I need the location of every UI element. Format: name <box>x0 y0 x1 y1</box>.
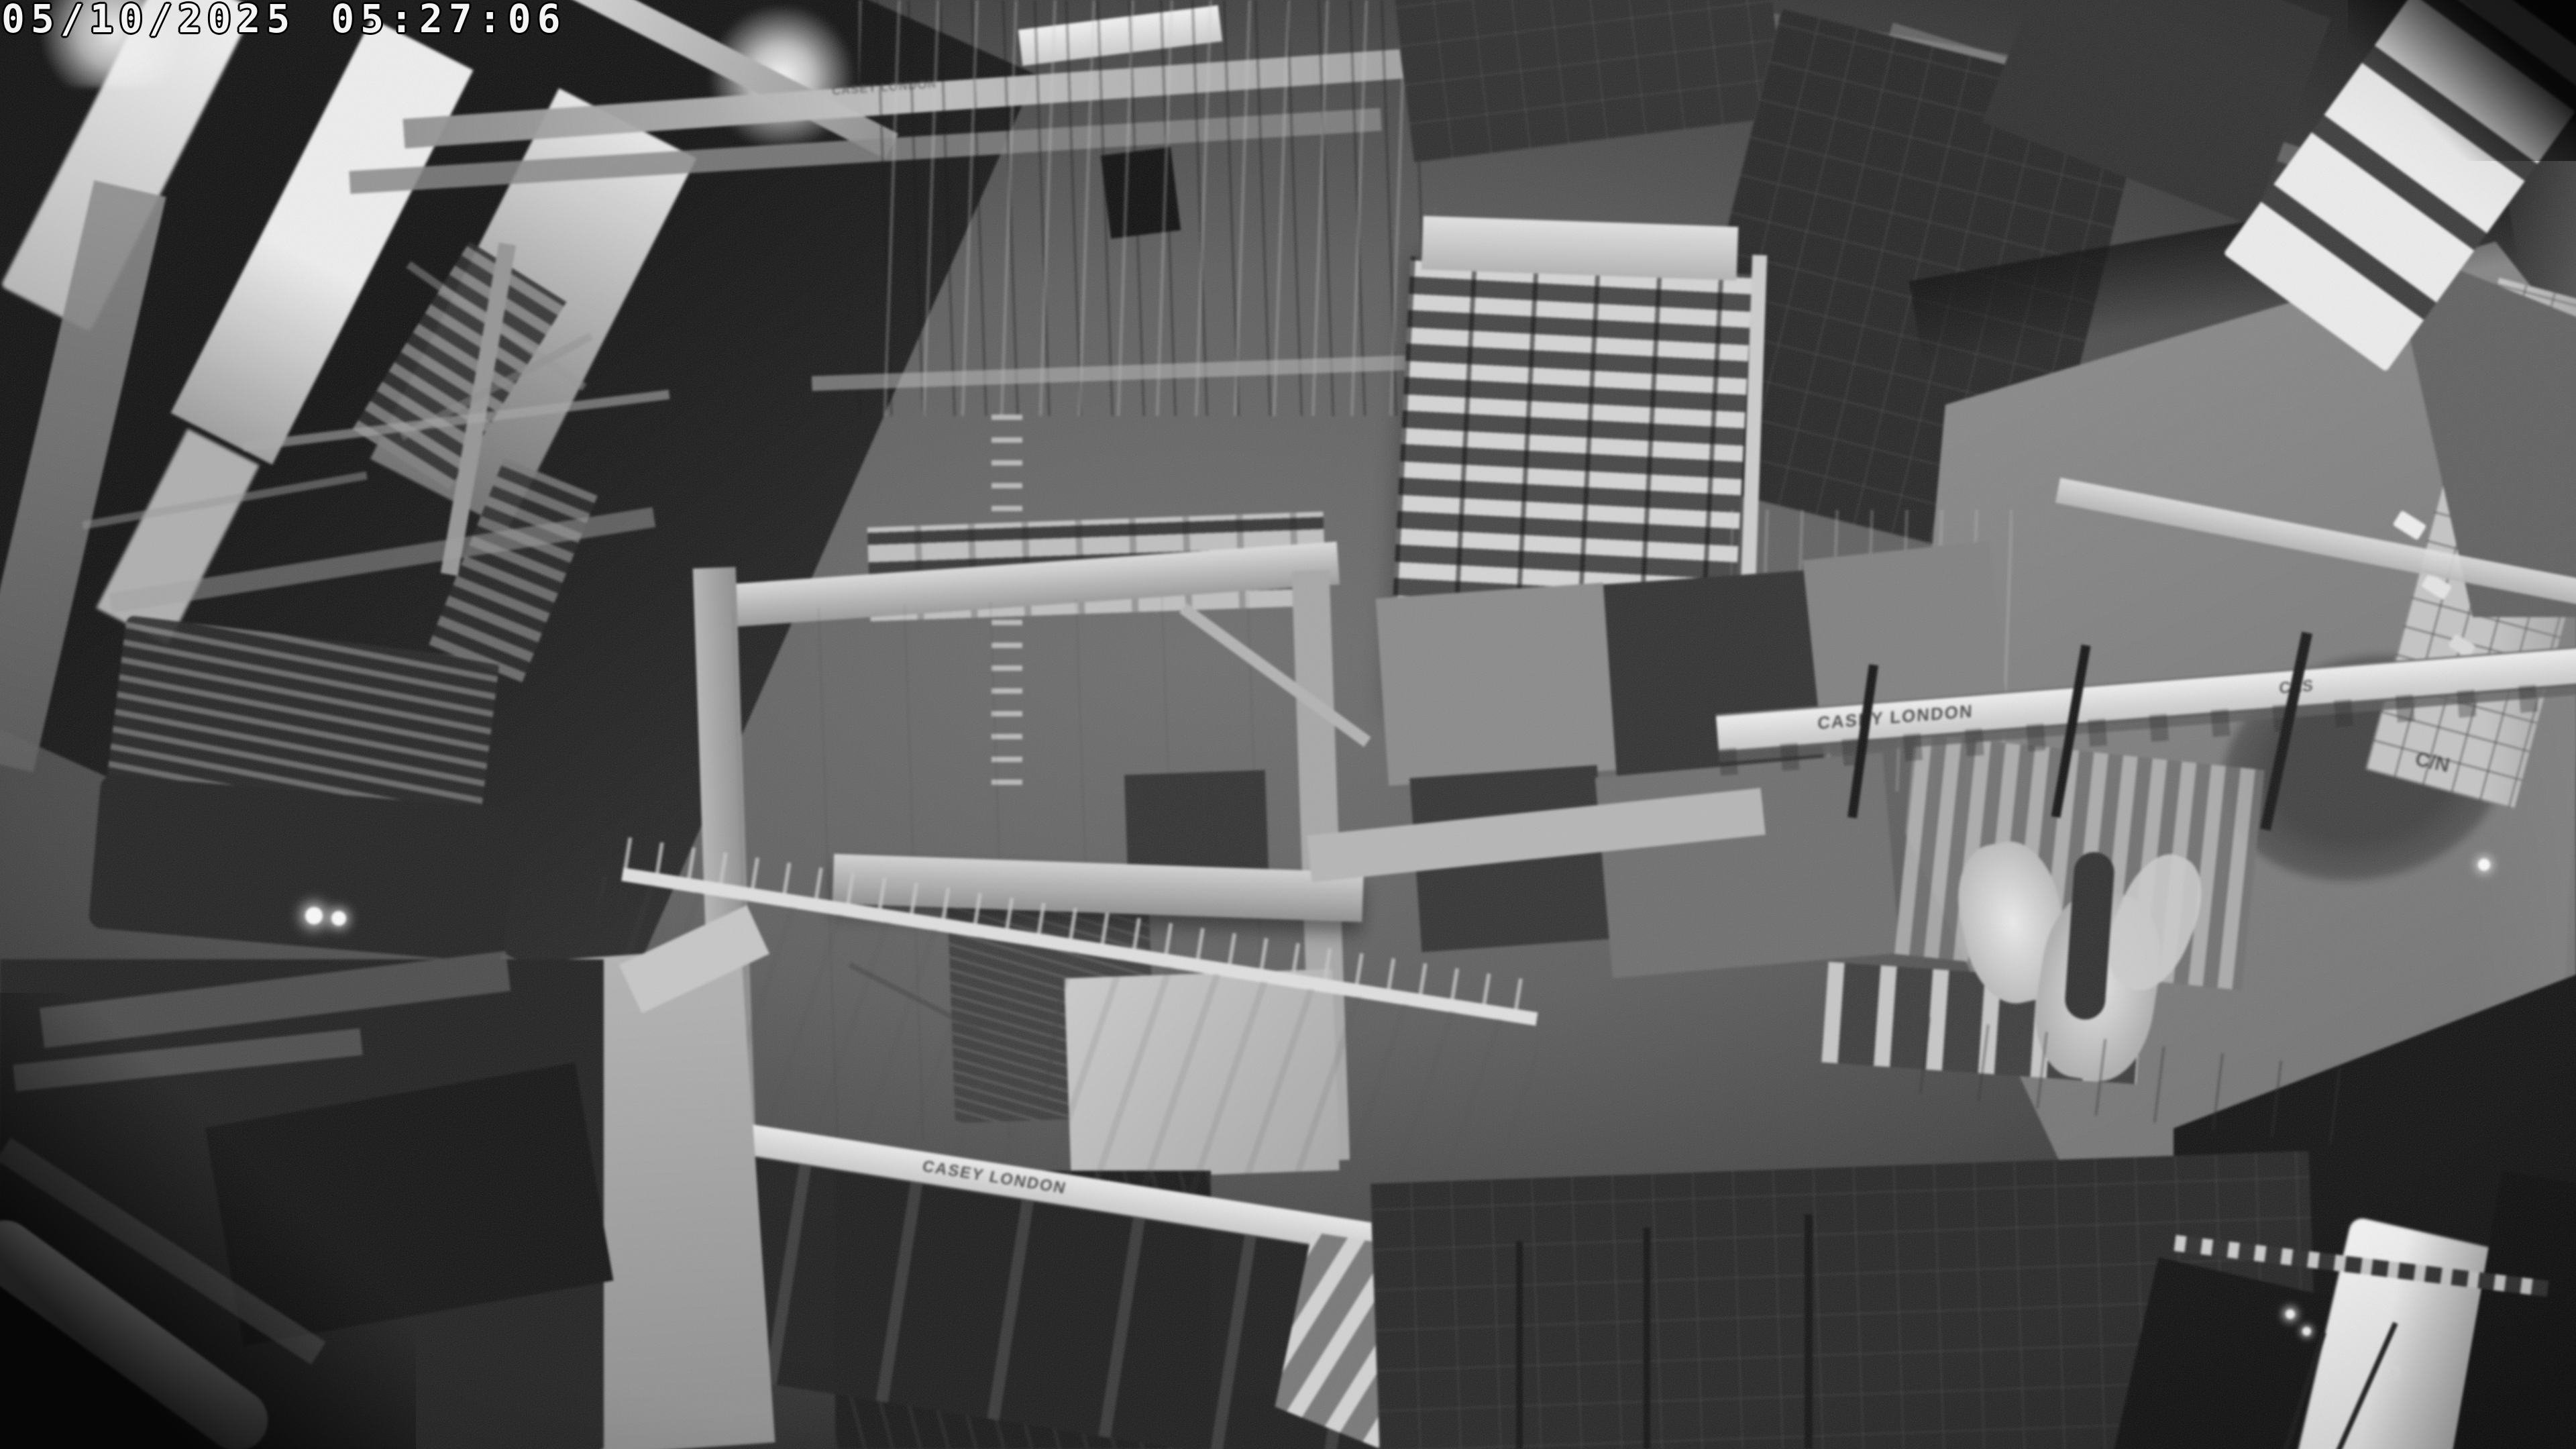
timestamp-time: 05:27:06 <box>331 0 566 42</box>
timestamp-overlay: 05/10/2025 05:27:06 <box>1 0 567 42</box>
cctv-frame: CASEY LONDON <box>0 0 2576 1449</box>
sensor-noise-overlay <box>0 0 2576 1449</box>
timestamp-date: 05/10/2025 <box>1 0 296 42</box>
